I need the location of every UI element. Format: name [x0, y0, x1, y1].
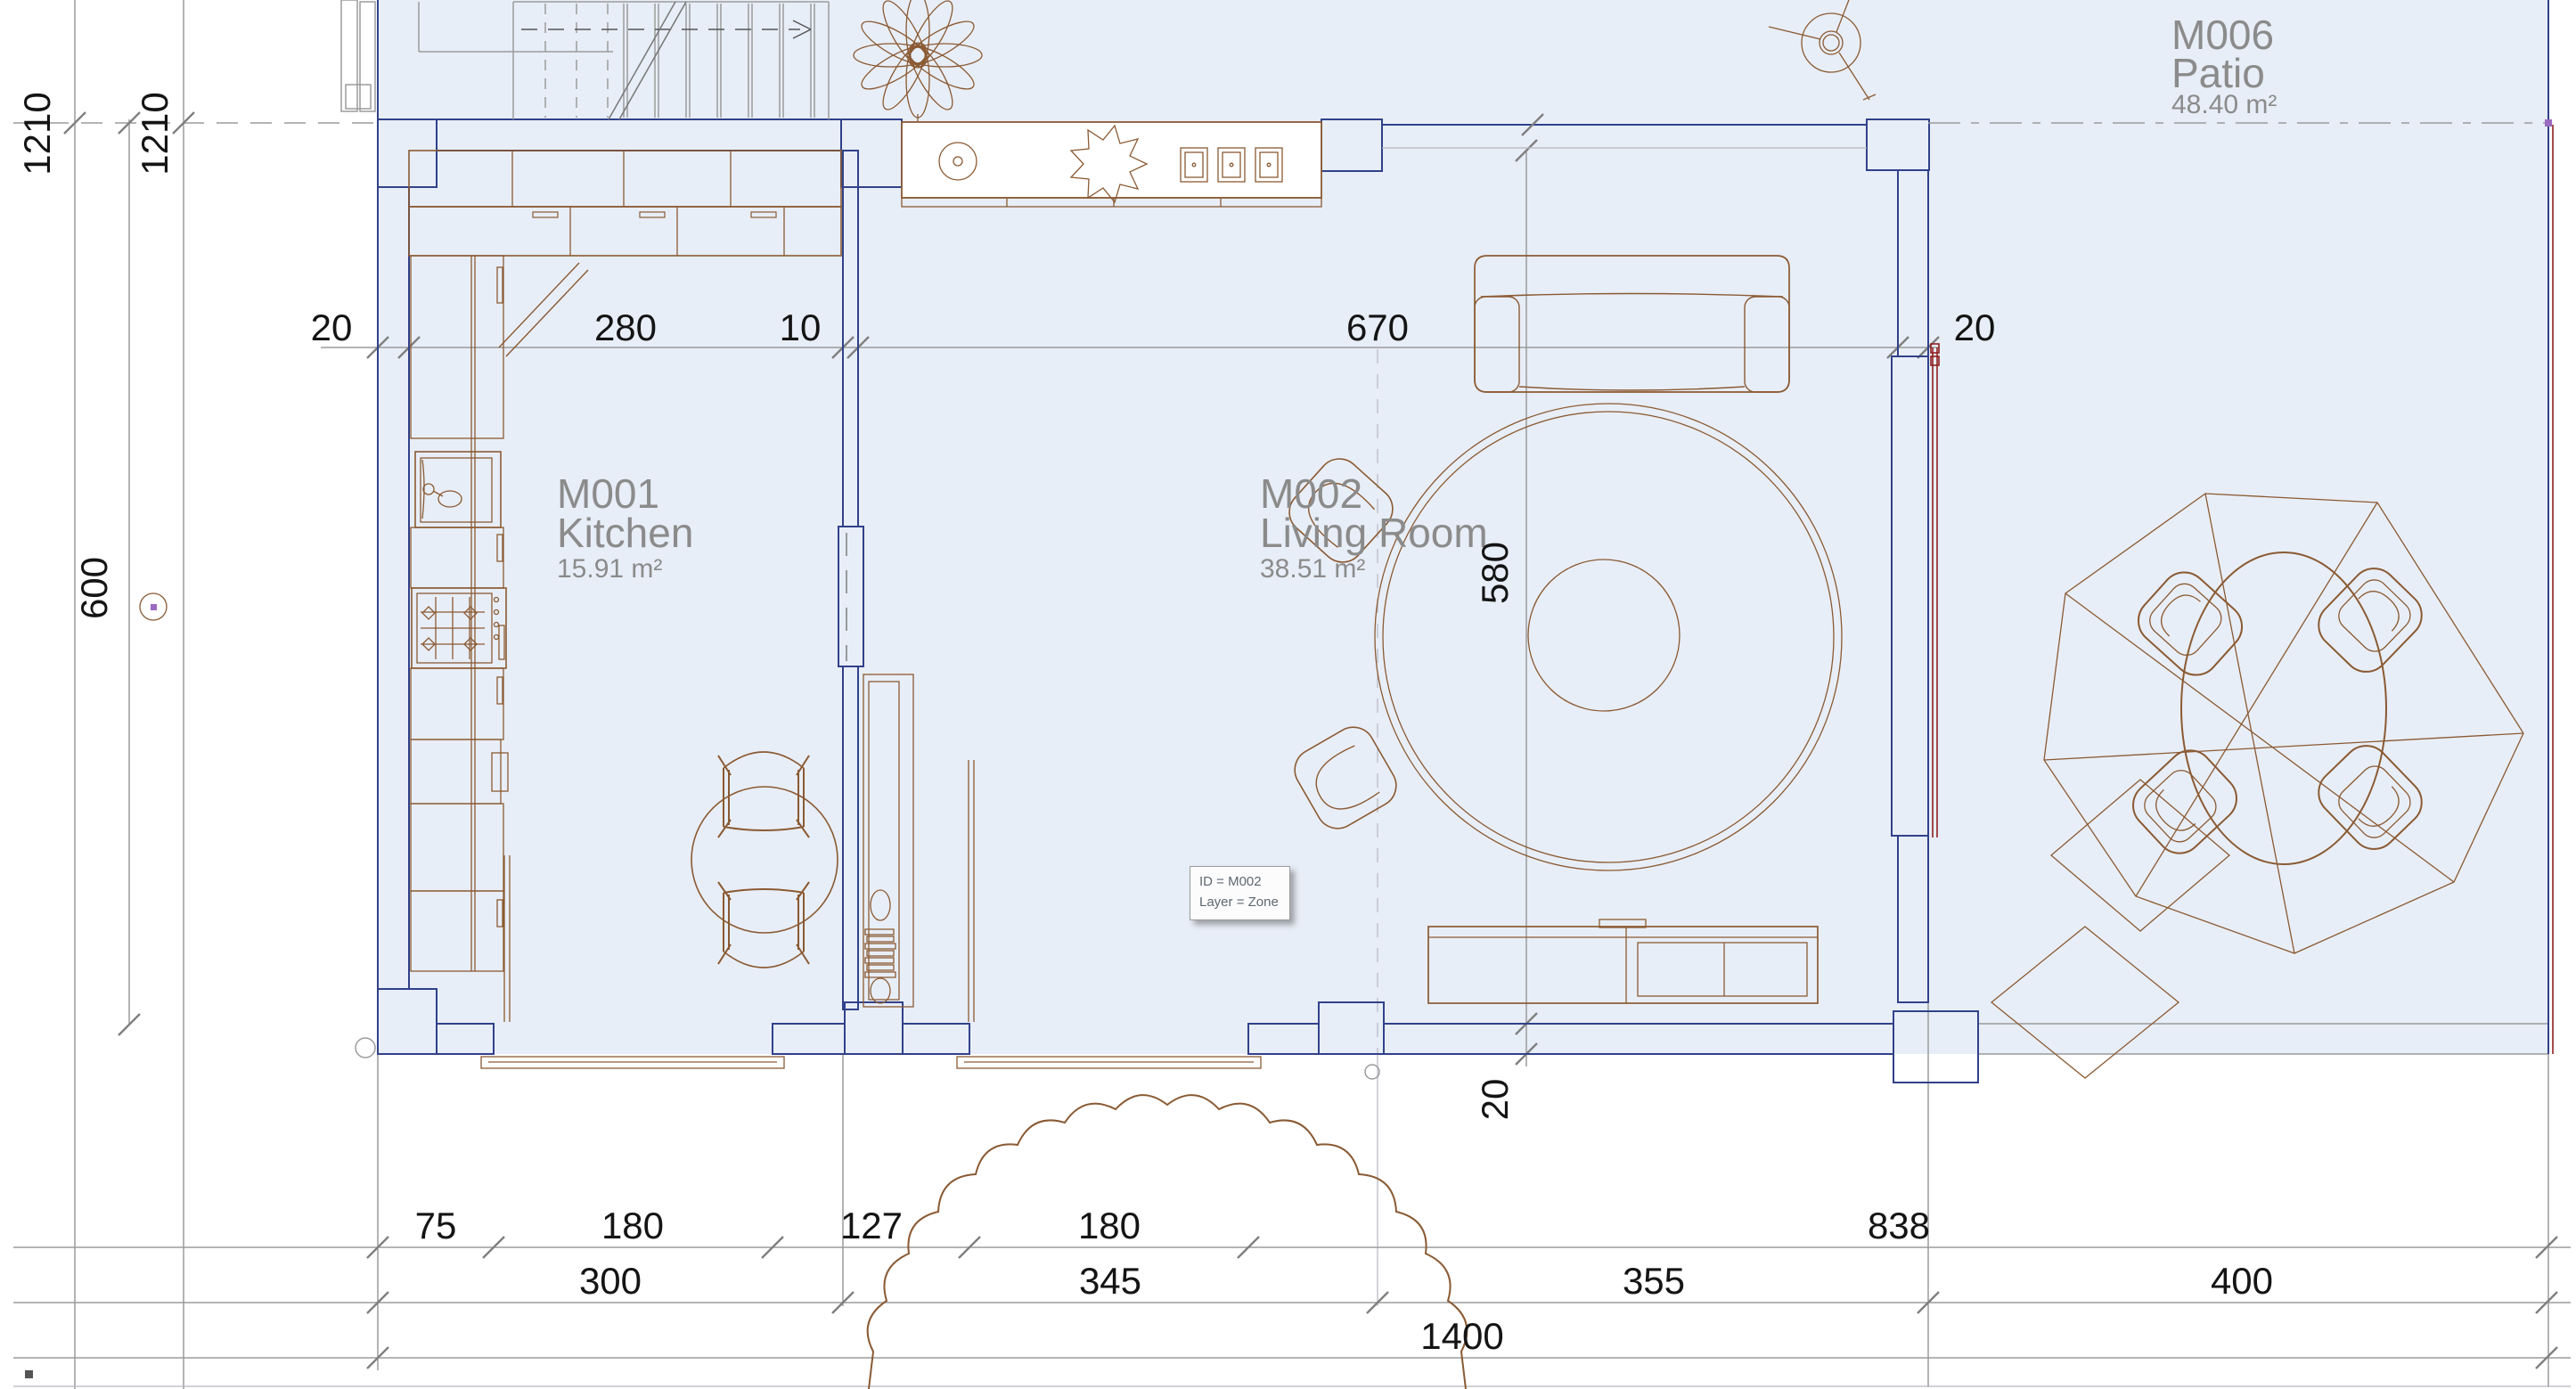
dim-row1-3: 180: [1078, 1205, 1141, 1246]
tooltip-id-line: ID = M002: [1199, 872, 1279, 893]
dim-row1-1: 180: [601, 1205, 664, 1246]
dim-top-0: 20: [311, 306, 353, 348]
dim-row1-0: 75: [415, 1205, 457, 1246]
room-zone-patio[interactable]: [1928, 123, 2548, 1024]
dim-top-1: 280: [594, 306, 657, 348]
dim-top-3: 670: [1346, 306, 1409, 348]
cad-floor-plan-view: M001 Kitchen 15.91 m² M002 Living Room 3…: [0, 0, 2576, 1389]
zone-tooltip: ID = M002 Layer = Zone: [1190, 866, 1290, 920]
room-name-living: Living Room: [1260, 510, 1488, 556]
dim-left-1: 1210: [134, 92, 176, 175]
floor-plan-canvas[interactable]: M001 Kitchen 15.91 m² M002 Living Room 3…: [0, 0, 2576, 1389]
dim-row2-0: 300: [579, 1260, 642, 1302]
dim-row1-4: 838: [1868, 1205, 1930, 1246]
dim-row2-1: 345: [1079, 1260, 1141, 1302]
room-zone-kitchen[interactable]: [409, 151, 843, 1024]
window-symbol: [341, 0, 375, 111]
wall-counter-unit[interactable]: [902, 122, 1321, 207]
dim-bottom-wall: 20: [1474, 1079, 1516, 1121]
dim-left-0: 1210: [16, 92, 58, 175]
dim-row1-2: 127: [840, 1205, 903, 1246]
dim-left-2: 600: [73, 557, 115, 619]
dim-top-4: 20: [1954, 306, 1996, 348]
dim-row2-2: 355: [1623, 1260, 1685, 1302]
dim-row2-3: 400: [2211, 1260, 2273, 1302]
hinge-marker: [356, 1038, 375, 1058]
dim-total-width: 1400: [1420, 1315, 1503, 1357]
room-area-patio: 48.40 m²: [2171, 90, 2277, 119]
dim-top-2: 10: [780, 306, 822, 348]
room-area-kitchen: 15.91 m²: [557, 554, 662, 584]
room-name-kitchen: Kitchen: [557, 510, 693, 556]
room-area-living: 38.51 m²: [1260, 554, 1365, 584]
tooltip-layer-line: Layer = Zone: [1199, 893, 1279, 913]
dim-interior-height: 580: [1474, 542, 1516, 604]
